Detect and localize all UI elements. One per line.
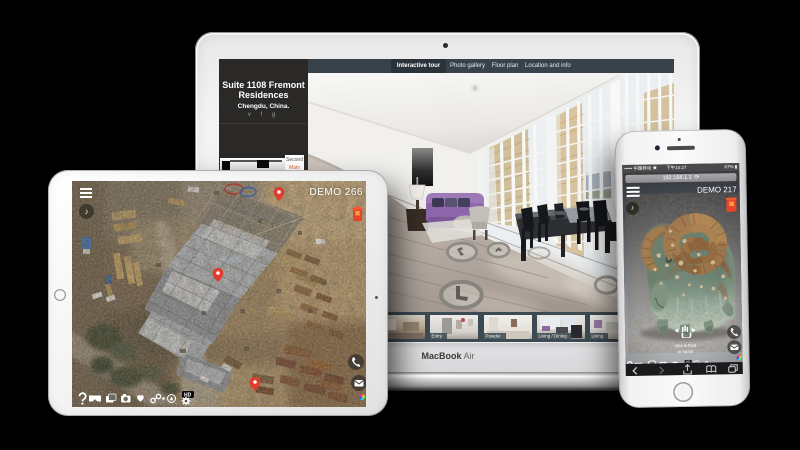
svg-text:Entry: Entry xyxy=(432,334,443,339)
svg-text:Powder: Powder xyxy=(486,334,502,339)
svg-text:Living: Living xyxy=(592,334,604,339)
svg-text:HD: HD xyxy=(184,393,192,399)
svg-text:Living / Dining: Living / Dining xyxy=(539,334,568,339)
